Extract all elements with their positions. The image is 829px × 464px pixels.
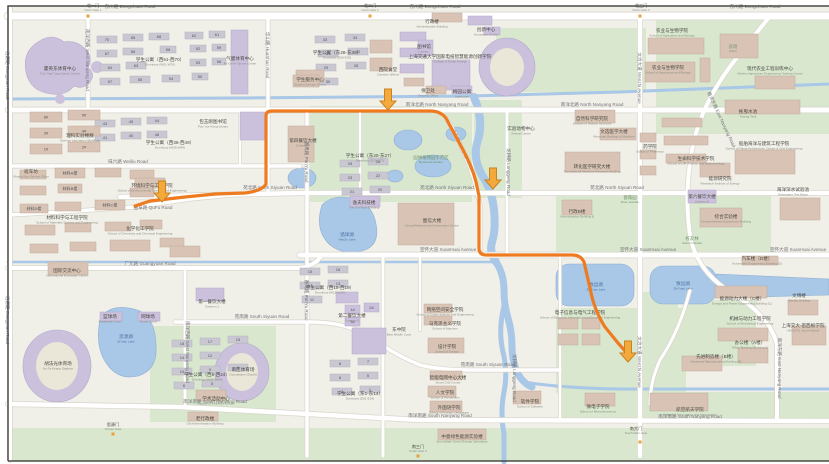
gate-label-en: South Gate 3 — [409, 449, 427, 453]
gate-dot — [112, 433, 115, 436]
building-label-en: School of Microelectronics — [580, 409, 617, 413]
building-number: 70 — [105, 37, 110, 42]
building-label-en: Student Service Center — [294, 82, 326, 86]
building-number: 15 — [308, 269, 313, 274]
building-label-en: Administration Building B — [560, 214, 594, 218]
building-label-en: Automobile Engineering Building (D) — [732, 261, 782, 265]
building-number: 28 — [354, 63, 359, 68]
building-label-en: School of Agriculture and Biology — [649, 33, 695, 37]
garden-label-en: Botanical Garden — [419, 160, 443, 164]
building-number: 54 — [169, 76, 174, 81]
building-label-en: Dormitory (E01-E14) — [346, 396, 374, 400]
road-label: 文治大道 Wenzhi Avenue — [636, 52, 643, 104]
building — [640, 166, 656, 175]
building-number: 30 — [326, 79, 331, 84]
lake-label-en: HanZe Lake — [339, 237, 356, 241]
building — [780, 198, 820, 220]
gate-dot — [87, 15, 90, 18]
building-number: 53 — [196, 60, 201, 65]
building-label-en: School of Materials Science and Engineer… — [36, 220, 98, 224]
building-number: 58 — [166, 47, 171, 52]
building-label-en: School of Mechanical Engineering — [727, 321, 774, 325]
building — [725, 100, 800, 114]
building-label-en: Institute of Natural Sciences — [573, 121, 612, 125]
building-label-en: WenBo Building — [788, 298, 810, 302]
building-label-en: Office Building (Building A) — [732, 345, 769, 349]
building-number: 6# — [44, 115, 49, 120]
road-label: 宣怀大道 XuanHuai Avenue — [620, 246, 677, 253]
building-label-en: School of Design — [435, 349, 459, 353]
building — [130, 170, 154, 179]
building-number: 材料B楼 — [63, 185, 78, 191]
building — [755, 76, 795, 89]
building-number: 12 — [208, 353, 213, 358]
road-label: 番禺路 PanYu Road — [303, 142, 310, 183]
building-label-en: School of Pharmacy — [636, 149, 664, 153]
building-number: 34 — [353, 35, 358, 40]
building-number: 21 — [350, 189, 355, 194]
building-number: 18 — [180, 341, 185, 346]
building-number: 64 — [108, 65, 113, 70]
building-label-en: Dormitory (W51-W70) — [145, 62, 175, 66]
building — [70, 242, 96, 251]
building-number: 65 — [131, 35, 136, 40]
road-label: 宣怀大道 XuanHuai Avenue — [420, 246, 477, 253]
road-label: 龙耕路 Longgeng Road — [511, 354, 518, 402]
building-number: 66 — [131, 49, 136, 54]
building-label-en: Pao Yue-Kong Library — [198, 124, 229, 128]
building-number: 22 — [376, 173, 381, 178]
road-label: 苑北路 North Siyuan Road — [420, 184, 474, 191]
building — [558, 334, 578, 345]
building-label-en: Apartment — [455, 94, 469, 98]
gate-dot — [639, 441, 642, 444]
building-number: 40 — [129, 133, 134, 138]
building-number: 29 — [324, 65, 329, 70]
building — [664, 136, 708, 145]
road-label: 南洋西路 West Nanyang Road — [184, 321, 191, 383]
building-label-en: Library/Network and Information Center — [405, 223, 459, 227]
building-label-en: Dormitory (E28-E35) — [323, 55, 351, 59]
building-label-en: Canteen 2 — [345, 318, 360, 322]
building-number: 材料C楼 — [103, 202, 118, 208]
building-label-en: Energy and Power Engineering Building (C… — [712, 301, 772, 305]
building-label-en: Innovation Center — [474, 32, 498, 36]
building-label-en: Dormitory (E20-E27) — [356, 158, 384, 162]
gate-dot — [417, 455, 420, 458]
building-label-en: UM-SJTU Joint Institute — [787, 328, 820, 332]
building-number: 50 — [198, 74, 203, 79]
building-label-en: Science Laboratory Buildings — [60, 138, 101, 142]
building-number: 63 — [134, 63, 139, 68]
gate-label-en: North Gate 3 — [632, 8, 650, 12]
gate-label-en: North Gate 2 — [361, 8, 379, 12]
building-number: 67 — [105, 51, 110, 56]
building-label-en: Deepwater Test Basin — [778, 192, 808, 196]
building-label-en: School of Electronic Information and Ele… — [540, 315, 621, 319]
sports-center-annex — [55, 94, 65, 104]
building-label-en: International Exchange Center — [46, 273, 88, 277]
stadium-infield — [490, 48, 524, 86]
building — [30, 244, 58, 253]
building-label-en: School of Life Science and Biotechnology — [668, 161, 725, 165]
building-label-en: Animal Center — [511, 131, 531, 135]
road-label: 华山路 HuaShan Road — [264, 32, 271, 79]
building-label-en: Tennis Court — [139, 319, 157, 323]
gate-label-en: SiYuan Gate — [105, 427, 122, 431]
building-label-en: Shuttle Bus Service Office — [13, 174, 49, 178]
building-number: 16 — [336, 267, 341, 272]
building-label-en: Gymnasium (South) — [229, 372, 257, 376]
building-label-en: Dormitory (W36-W49) — [155, 145, 185, 149]
building — [432, 60, 470, 90]
building-label-en: School of Cyber Science and Engineering — [416, 312, 474, 316]
building-number: 2# — [82, 145, 87, 150]
road-label: 南洋南路 South Nanyang Road — [658, 413, 722, 420]
building-number: 57 — [108, 79, 113, 84]
building — [240, 112, 266, 140]
building-label-en: Wenxuan Building of Medicine — [593, 134, 635, 138]
road-label: 南洋南路 South Nanyang Road — [408, 412, 472, 419]
building-number: 41 — [103, 135, 108, 140]
building — [404, 78, 424, 86]
building-label-en: Research Institute of Energy — [700, 181, 739, 185]
building-label-en: School of Agriculture and Biology — [645, 70, 691, 74]
building — [170, 246, 200, 257]
building — [25, 225, 55, 235]
campus-map[interactable]: 7065686261676658525964635356575554504345… — [0, 0, 829, 464]
lake-label-en: ZhiYuan Lake — [674, 286, 693, 290]
building-number: 33 — [323, 37, 328, 42]
building — [648, 38, 704, 54]
building — [400, 32, 426, 41]
building-label-en: East Middle Court — [387, 332, 412, 336]
road-label: 苑南路 South Siyuan Road — [461, 361, 516, 368]
road-label: 苑南路 South Siyuan Road — [235, 313, 290, 320]
building-label-en: College of Smart Energy — [433, 59, 467, 63]
building — [160, 238, 184, 247]
gate-label-en: South Main Gate — [625, 431, 648, 435]
building-number: 1# — [44, 147, 49, 152]
building-label-en: Administrative Building — [416, 24, 448, 28]
building — [20, 186, 46, 195]
building-number: 14 — [180, 355, 185, 360]
building — [738, 348, 768, 363]
building-label-en: School of Marxism — [432, 326, 458, 330]
building — [110, 240, 150, 251]
building — [720, 34, 758, 58]
building-label-en: School of Chemistry and Chemical Enginee… — [108, 231, 173, 235]
road-label: 南洋北路 North Nanyang Road — [561, 101, 624, 108]
building-label-en: Comprehensive Experiment Building — [701, 219, 751, 223]
building-label-en: School of Humanities — [430, 395, 460, 399]
road-label: 苑北路 North Siyuan Road — [590, 184, 644, 191]
building — [582, 318, 600, 329]
building — [640, 133, 656, 142]
building-label-en: Canteen 1 — [205, 304, 220, 308]
campus-map-svg[interactable]: 7065686261676658525964635356575554504345… — [0, 0, 829, 464]
building-number: 68 — [157, 34, 162, 39]
building — [700, 58, 710, 82]
building-number: 59 — [217, 45, 222, 50]
road-label: 南洋东路 East Nanyang Road — [776, 338, 783, 399]
building-label-en: Basketball Court — [99, 319, 122, 323]
building-label-en: Translational Medicine Research Building — [564, 169, 621, 173]
gate-dot — [369, 15, 372, 18]
building — [735, 150, 795, 174]
building-label-en: Sino-Italian Green Energy Laboratory — [436, 439, 488, 443]
building-number: 23 — [348, 175, 353, 180]
building-label-en: Towing Tank — [740, 114, 757, 118]
building-number: 5# — [82, 113, 87, 118]
building-number: 20 — [378, 187, 383, 192]
road-label: 龙耕路 Longgeng Road — [505, 148, 512, 196]
building-number: 15 — [236, 337, 241, 342]
building-label-en: Air Dome Sports Center — [224, 61, 257, 65]
building — [468, 16, 492, 25]
road-label: 苑北路 North Siyuan Road — [243, 184, 297, 191]
building — [95, 168, 121, 177]
garden-label-en: Rose Garden — [621, 200, 640, 204]
building-label-en: School of Software — [517, 404, 543, 408]
building-number: 2# — [369, 305, 374, 310]
building-label-en: Old Administration Building — [187, 421, 224, 425]
building-number: 材料A楼 — [63, 170, 78, 176]
building — [370, 40, 392, 53]
road-label: 广元路 Guangyuan Road — [124, 260, 176, 267]
building-label-en: Advanced Manufacturing Building (B) — [690, 359, 741, 363]
building — [582, 334, 600, 345]
road-label: 味六路 Weiliu Road — [108, 158, 148, 165]
building-label-en: Canteen 6 — [695, 199, 710, 203]
building — [558, 318, 578, 329]
building-number: 52 — [196, 46, 201, 51]
lake-label-en: SiYuan Lake — [117, 339, 135, 343]
building-label-en: Yifu Sci-Tech Building — [349, 205, 379, 209]
road-label: 宣怀大道 XuanHuai Avenue — [770, 246, 827, 253]
garden-label-en: Alumni Woods — [682, 241, 702, 245]
building-label-en: Smart Grid Center — [435, 380, 460, 384]
building-number: 61 — [215, 32, 220, 37]
building-number: 46 — [155, 132, 160, 137]
building-label-en: School of Environmental Science and Engi… — [118, 188, 187, 192]
building-number: 17 — [208, 339, 213, 344]
building-label-en: Modern Agriculture Engineering Training … — [737, 71, 802, 75]
building-number: 材料D楼 — [27, 205, 42, 211]
building — [55, 202, 81, 211]
building — [352, 328, 386, 354]
road-label: 南洋西路 West Nanyang Road — [84, 29, 91, 91]
building-label-en: Dormitory (W05-W24) — [192, 377, 222, 381]
building-number: 56 — [217, 59, 222, 64]
building-label-en: Security Office — [418, 93, 438, 97]
building-number: 62 — [192, 33, 197, 38]
road-label: 番禺路 PanYu Road — [303, 280, 310, 321]
building-label-en: Dormitory (W15-W19) — [315, 290, 345, 294]
road-label: 南洋南路 South Nanyang Road — [183, 398, 247, 405]
building-label-en: Hu Fa Kuang Stadium — [43, 366, 74, 370]
building-label-en: Fok Ying Tung Sports Center — [40, 71, 80, 75]
gate-dot — [639, 15, 642, 18]
building-label-en: School of Naval Architecture, Ocean & Ci… — [726, 146, 803, 150]
road-label: 南洋北路 North Nanyang Road — [406, 101, 469, 108]
building-label-en: Library — [419, 49, 429, 53]
building-label-en: Canteen (West) — [377, 72, 399, 76]
pond — [387, 170, 403, 182]
gate-label-en: North Gate 1 — [84, 8, 102, 12]
garden-label-en: Farm — [729, 49, 737, 53]
building-number: 55 — [138, 77, 143, 82]
building-number: 43 — [103, 121, 108, 126]
road-label: 文治大道 Wenzhi Avenue — [636, 336, 643, 388]
building-number: 44 — [155, 118, 160, 123]
building — [400, 64, 424, 73]
building-number: 1# — [350, 307, 355, 312]
building-number: 3# — [44, 131, 49, 136]
building — [662, 118, 702, 127]
green-area — [600, 312, 670, 382]
building-number: 25 — [348, 161, 353, 166]
building-number: 45 — [129, 119, 134, 124]
pond — [394, 130, 422, 150]
